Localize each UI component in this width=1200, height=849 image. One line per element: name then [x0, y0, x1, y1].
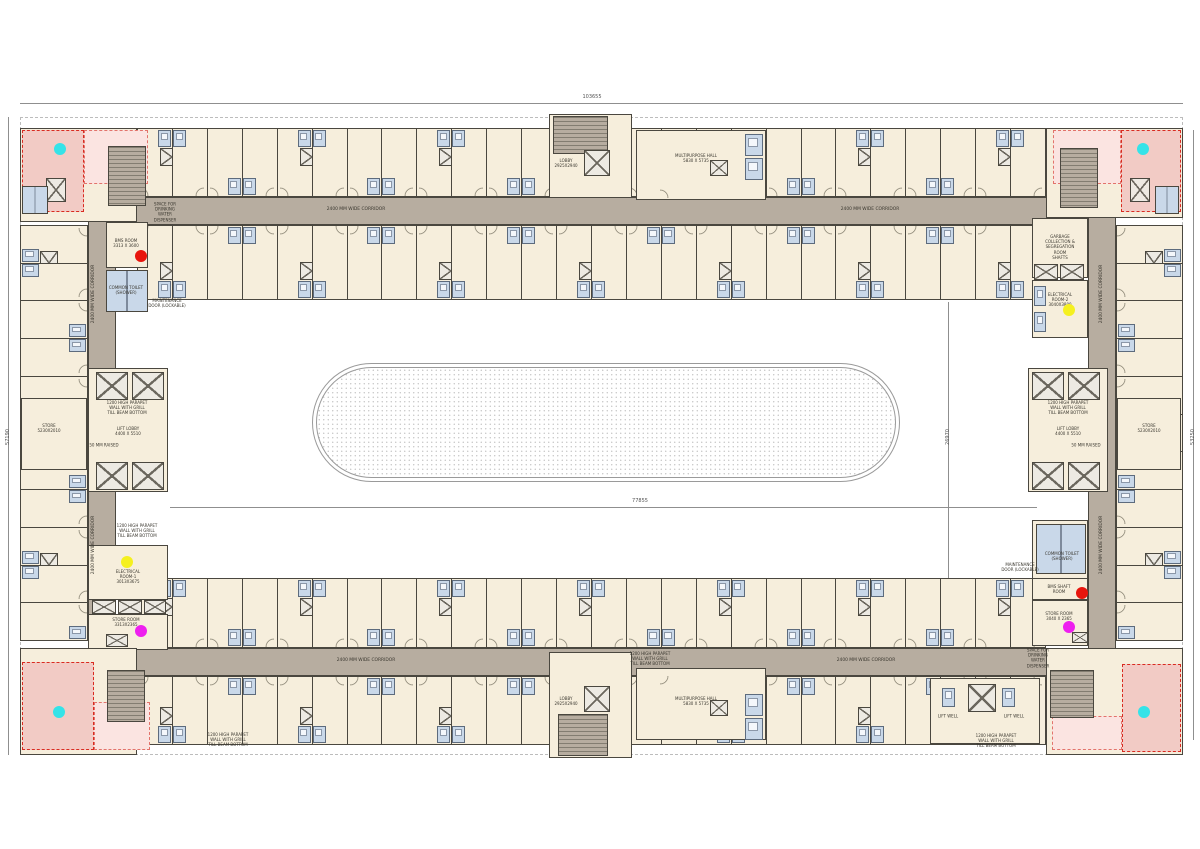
- parapet-left-label: 1200 HIGH PARAPET WALL WITH GRILL TILL B…: [107, 400, 148, 416]
- bathroom-pod: [732, 580, 745, 597]
- bathroom-pod: [926, 629, 939, 646]
- door-arc: [489, 226, 499, 236]
- door-arc: [419, 677, 429, 687]
- bathroom-pod: [228, 678, 241, 695]
- bathroom-pod: [926, 178, 939, 195]
- bathroom-pod: [158, 281, 171, 298]
- bathroom-pod: [243, 227, 256, 244]
- bathroom-pod: [69, 626, 86, 639]
- door-arc: [473, 186, 483, 196]
- bathroom-pod: [158, 726, 171, 743]
- lift-well-l2: [132, 372, 164, 400]
- door-arc: [350, 186, 360, 196]
- common-toilet-br-label: COMMON TOILET (SHOWER): [1045, 551, 1079, 561]
- electrical-pod-1: [1034, 286, 1046, 306]
- lift-shaft-br: [968, 684, 996, 712]
- door-arc: [77, 530, 87, 540]
- door-arc: [334, 637, 344, 647]
- door-arc: [699, 637, 709, 647]
- bathroom-pod: [592, 281, 605, 298]
- door-arc: [489, 677, 499, 687]
- door-arc: [194, 186, 204, 196]
- marker-dot-yellow-right: [1063, 304, 1075, 316]
- bathroom-pod: [69, 339, 86, 352]
- hall-top-pod-2: [745, 158, 763, 180]
- store-right-label: STORE 5230X2010: [1137, 423, 1160, 433]
- door-arc: [350, 677, 360, 687]
- bathroom-pod: [228, 178, 241, 195]
- bathroom-pod: [507, 227, 520, 244]
- door-arc: [1117, 530, 1127, 540]
- bathroom-pod: [69, 324, 86, 337]
- hall-bottom-pod-1: [745, 694, 763, 716]
- bathroom-pod: [298, 580, 311, 597]
- door-arc: [210, 677, 220, 687]
- bathroom-pod: [856, 130, 869, 147]
- door-arc: [473, 637, 483, 647]
- lift-section-pod-2: [1002, 688, 1015, 707]
- door-arc: [908, 637, 918, 647]
- bathroom-pod: [941, 227, 954, 244]
- bathroom-pod: [1118, 626, 1135, 639]
- door-arc: [838, 637, 848, 647]
- bathroom-pod: [228, 629, 241, 646]
- courtyard-hatch: [316, 367, 896, 478]
- bathroom-pod: [437, 726, 450, 743]
- door-arc: [77, 287, 87, 297]
- parapet-bottom-centre-label: 1200 HIGH PARAPET WALL WITH GRILL TILL B…: [630, 651, 671, 667]
- bathroom-pod: [298, 726, 311, 743]
- bathroom-pod: [313, 580, 326, 597]
- refuge-area-br-light: [1052, 716, 1122, 750]
- lift-section-pod-1: [942, 688, 955, 707]
- bathroom-pod: [367, 178, 380, 195]
- door-arc: [210, 637, 220, 647]
- bathroom-pod: [802, 178, 815, 195]
- bathroom-pod: [996, 281, 1009, 298]
- bathroom-pod: [926, 227, 939, 244]
- bathroom-pod: [69, 490, 86, 503]
- bathroom-pod: [802, 227, 815, 244]
- marker-dot-cyan-br: [1138, 706, 1150, 718]
- bathroom-pod: [871, 130, 884, 147]
- door-arc: [280, 637, 290, 647]
- hall-bottom-label: MULTIPURPOSE HALL 5830 X 5735: [675, 696, 717, 706]
- lift-well-r3: [1032, 462, 1064, 490]
- door-arc: [194, 226, 204, 236]
- parapet-bottom-left-label: 1200 HIGH PARAPET WALL WITH GRILL TILL B…: [208, 732, 249, 748]
- hall-top-label: MULTIPURPOSE HALL 5830 X 5735: [675, 153, 717, 163]
- bathroom-pod: [787, 227, 800, 244]
- lift-well-r1: [1032, 372, 1064, 400]
- bathroom-pod: [367, 227, 380, 244]
- bathroom-pod: [522, 227, 535, 244]
- marker-dot-cyan-tl: [54, 143, 66, 155]
- door-arc: [473, 677, 483, 687]
- door-arc: [699, 226, 709, 236]
- bathroom-pod: [22, 264, 39, 277]
- bathroom-pod: [298, 281, 311, 298]
- door-arc: [559, 226, 569, 236]
- shaft-garbage-1: [1034, 264, 1058, 280]
- bathroom-pod: [732, 281, 745, 298]
- door-arc: [1117, 514, 1127, 524]
- toilet-pod-tr: [1155, 186, 1179, 214]
- bathroom-pod: [802, 678, 815, 695]
- shaft-lb-2: [118, 600, 142, 614]
- door-arc: [978, 226, 988, 236]
- bathroom-pod: [313, 130, 326, 147]
- corridor-label-left-lower: 2400 MM WIDE CORRIDOR: [91, 516, 97, 575]
- marker-dot-magenta-left: [135, 625, 147, 637]
- bathroom-pod: [1011, 130, 1024, 147]
- bathroom-pod: [22, 249, 39, 262]
- bathroom-pod: [437, 130, 450, 147]
- bathroom-pod: [173, 726, 186, 743]
- door-arc: [543, 637, 553, 647]
- door-arc: [1117, 228, 1127, 238]
- door-arc: [403, 186, 413, 196]
- bathroom-pod: [647, 629, 660, 646]
- corridor-label-right-lower: 2400 MM WIDE CORRIDOR: [1099, 516, 1105, 575]
- bathroom-pod: [507, 678, 520, 695]
- bathroom-pod: [298, 130, 311, 147]
- door-arc: [403, 677, 413, 687]
- door-arc: [559, 637, 569, 647]
- bathroom-pod: [856, 281, 869, 298]
- staircase-tl: [108, 146, 146, 206]
- door-arc: [962, 186, 972, 196]
- door-arc-hall-top: [660, 188, 670, 198]
- water-dispenser-br-label: SPACE FOR DRINKING WATER DISPENSER: [1027, 648, 1050, 669]
- lift-shaft-tl: [46, 178, 66, 202]
- bathroom-pod: [173, 580, 186, 597]
- door-arc: [962, 637, 972, 647]
- door-arc: [194, 677, 204, 687]
- bathroom-pod: [1011, 580, 1024, 597]
- lift-well-r2: [1068, 372, 1100, 400]
- door-arc: [822, 226, 832, 236]
- bathroom-pod: [802, 629, 815, 646]
- corridor-label-right-upper: 2400 MM WIDE CORRIDOR: [1099, 265, 1105, 324]
- lift-well-br-right-label: LIFT WELL: [1004, 713, 1024, 718]
- bathroom-pod: [173, 281, 186, 298]
- door-arc: [822, 186, 832, 196]
- lift-well-l3: [96, 462, 128, 490]
- door-arc: [264, 186, 274, 196]
- door-arc: [962, 226, 972, 236]
- bathroom-pod: [1118, 339, 1135, 352]
- bathroom-pod: [787, 678, 800, 695]
- door-arc: [77, 303, 87, 313]
- door-arc: [210, 186, 220, 196]
- parapet-bottom-right-label: 1200 HIGH PARAPET WALL WITH GRILL TILL B…: [976, 733, 1017, 749]
- door-arc: [543, 226, 553, 236]
- door-arc: [838, 186, 848, 196]
- door-arc: [280, 186, 290, 196]
- door-arc: [77, 363, 87, 373]
- door-arc: [489, 637, 499, 647]
- door-arc: [892, 677, 902, 687]
- bathroom-pod: [1118, 490, 1135, 503]
- dim-overall-width: 103655: [582, 94, 601, 101]
- bathroom-pod: [367, 678, 380, 695]
- door-arc: [1032, 186, 1042, 196]
- door-arc: [280, 226, 290, 236]
- door-arc-hall-bottom: [660, 676, 670, 686]
- bathroom-pod: [228, 227, 241, 244]
- marker-dot-red-br: [1076, 587, 1088, 599]
- door-arc: [769, 677, 779, 687]
- bathroom-pod: [647, 227, 660, 244]
- door-arc: [419, 226, 429, 236]
- lift-lobby-left-label: LIFT LOBBY 4400 X 5510: [115, 426, 141, 436]
- door-arc: [77, 589, 87, 599]
- door-arc: [403, 637, 413, 647]
- lift-well-r4: [1068, 462, 1100, 490]
- bathroom-pod: [313, 726, 326, 743]
- door-arc: [1117, 605, 1127, 615]
- door-arc: [892, 226, 902, 236]
- staircase-tr: [1060, 148, 1098, 208]
- bathroom-pod: [452, 281, 465, 298]
- bathroom-pod: [856, 726, 869, 743]
- door-arc: [753, 637, 763, 647]
- store-left-block: [21, 398, 87, 470]
- bathroom-pod: [592, 580, 605, 597]
- floor-plan-canvas: 103655 57190 53250 77855 26970 2400 MM W…: [0, 0, 1200, 849]
- door-arc: [1117, 589, 1127, 599]
- door-arc: [77, 605, 87, 615]
- marker-dot-cyan-bl: [53, 706, 65, 718]
- staircase-br: [1050, 670, 1094, 718]
- parapet-left-lower-label: 1200 HIGH PARAPET WALL WITH GRILL TILL B…: [117, 523, 158, 539]
- corridor-label-top-right: 2400 MM WIDE CORRIDOR: [841, 207, 900, 213]
- door-arc: [210, 226, 220, 236]
- lift-lobby-right-label: LIFT LOBBY 4400 X 5510: [1055, 426, 1081, 436]
- door-arc: [77, 514, 87, 524]
- lobby-bottom-label: LOBBY 2925X2940: [554, 696, 577, 706]
- shaft-rb-1: [1072, 632, 1088, 643]
- marker-dot-cyan-tr: [1137, 143, 1149, 155]
- bathroom-pod: [1118, 475, 1135, 488]
- parapet-right-label: 1200 HIGH PARAPET WALL WITH GRILL TILL B…: [1048, 400, 1089, 416]
- water-dispenser-tl-label: SPACE FOR DRINKING WATER DISPENSER: [154, 202, 177, 223]
- door-arc: [1117, 303, 1127, 313]
- raised-left-label: 50 MM RAISED: [89, 442, 118, 447]
- door-arc: [978, 186, 988, 196]
- dimension-line-courtyard-w: [170, 507, 1037, 508]
- door-arc: [473, 226, 483, 236]
- lift-shaft-top: [584, 150, 610, 176]
- dim-courtyard-height: 26970: [945, 429, 952, 445]
- bathroom-pod: [1164, 264, 1181, 277]
- hall-top-pod-1: [745, 134, 763, 156]
- door-arc: [892, 637, 902, 647]
- store-room-left-label: STORE ROOM 3313X2365: [112, 617, 139, 627]
- door-arc: [334, 226, 344, 236]
- corridor-top: [88, 197, 1112, 225]
- bathroom-pod: [522, 629, 535, 646]
- common-toilet-tl-label: COMMON TOILET (SHOWER): [109, 285, 143, 295]
- door-arc: [350, 226, 360, 236]
- bathroom-pod: [367, 629, 380, 646]
- dimension-line-top: [20, 103, 1183, 104]
- bathroom-pod: [382, 629, 395, 646]
- bathroom-pod: [996, 580, 1009, 597]
- shaft-garbage-2: [1060, 264, 1084, 280]
- door-arc: [613, 637, 623, 647]
- door-arc: [77, 228, 87, 238]
- door-arc: [264, 677, 274, 687]
- bathroom-pod: [871, 281, 884, 298]
- door-arc: [892, 186, 902, 196]
- door-arc: [822, 677, 832, 687]
- garbage-room-label: GARBAGE COLLECTION & SEGREGATION ROOM SH…: [1045, 234, 1075, 260]
- bathroom-pod: [996, 130, 1009, 147]
- electrical-room-1-label: ELECTRICAL ROOM-1 3013X3675: [116, 569, 140, 585]
- maintenance-door-br-label: MAINTENANCE DOOR (LOCKABLE): [1001, 562, 1038, 572]
- door-arc: [629, 226, 639, 236]
- bathroom-pod: [856, 580, 869, 597]
- bathroom-pod: [941, 629, 954, 646]
- door-arc: [613, 226, 623, 236]
- bathroom-pod: [452, 130, 465, 147]
- corridor-label-top-left: 2400 MM WIDE CORRIDOR: [327, 207, 386, 213]
- shaft-lb-1: [92, 600, 116, 614]
- bathroom-pod: [1164, 249, 1181, 262]
- bathroom-pod: [507, 178, 520, 195]
- bathroom-pod: [1118, 324, 1135, 337]
- store-right-block: [1117, 398, 1181, 470]
- door-arc: [194, 637, 204, 647]
- maintenance-door-tl-label: MAINTENANCE DOOR (LOCKABLE): [148, 298, 185, 308]
- bathroom-pod: [522, 178, 535, 195]
- marker-dot-red-tl: [135, 250, 147, 262]
- bms-shaft-room-label: BMS SHAFT ROOM: [1048, 584, 1071, 594]
- bathroom-pod: [522, 678, 535, 695]
- shaft-lb-3: [144, 600, 166, 614]
- bathroom-pod: [717, 580, 730, 597]
- lift-shaft-tr: [1130, 178, 1150, 202]
- door-arc: [264, 637, 274, 647]
- shaft-lb-4: [106, 634, 128, 647]
- door-arc: [403, 226, 413, 236]
- door-arc: [769, 637, 779, 647]
- door-arc: [629, 637, 639, 647]
- store-room-right-label: STORE ROOM 3040 X 2365: [1045, 611, 1072, 621]
- door-arc: [419, 637, 429, 647]
- door-arc: [264, 226, 274, 236]
- dim-right-height: 53250: [1190, 429, 1197, 445]
- bathroom-pod: [787, 178, 800, 195]
- lobby-top-label: LOBBY 2925X2940: [554, 158, 577, 168]
- staircase-bottom: [558, 714, 608, 756]
- door-arc: [77, 379, 87, 389]
- bathroom-pod: [243, 678, 256, 695]
- bathroom-pod: [437, 580, 450, 597]
- bathroom-pod: [871, 580, 884, 597]
- door-arc: [1117, 287, 1127, 297]
- bms-room-label: BMS ROOM 3313 X 3600: [113, 238, 139, 248]
- door-arc: [419, 186, 429, 196]
- door-arc: [280, 677, 290, 687]
- courtyard-track: [312, 363, 900, 482]
- raised-right-label: 50 MM RAISED: [1071, 442, 1100, 447]
- bathroom-pod: [507, 629, 520, 646]
- bathroom-pod: [662, 227, 675, 244]
- dim-courtyard-width: 77855: [632, 498, 648, 505]
- bathroom-pod: [452, 580, 465, 597]
- bathroom-pod: [871, 726, 884, 743]
- door-arc: [908, 226, 918, 236]
- door-arc: [334, 186, 344, 196]
- door-arc: [350, 637, 360, 647]
- bathroom-pod: [577, 281, 590, 298]
- door-arc: [978, 637, 988, 647]
- door-arc: [838, 226, 848, 236]
- bathroom-pod: [243, 629, 256, 646]
- staircase-top: [553, 116, 608, 154]
- corridor-label-bottom-left: 2400 MM WIDE CORRIDOR: [337, 658, 396, 664]
- bathroom-pod: [22, 551, 39, 564]
- door-arc: [822, 637, 832, 647]
- bathroom-pod: [158, 130, 171, 147]
- bathroom-pod: [22, 566, 39, 579]
- bathroom-pod: [1164, 566, 1181, 579]
- bathroom-pod: [382, 178, 395, 195]
- bathroom-pod: [1164, 551, 1181, 564]
- marker-dot-magenta-right: [1063, 621, 1075, 633]
- hall-bottom-pod-2: [745, 718, 763, 740]
- door-arc: [1117, 363, 1127, 373]
- marker-dot-yellow-left: [121, 556, 133, 568]
- door-arc: [908, 186, 918, 196]
- bathroom-pod: [69, 475, 86, 488]
- store-left-label: STORE 5230X2010: [37, 423, 60, 433]
- lift-well-l4: [132, 462, 164, 490]
- door-arc: [683, 226, 693, 236]
- corridor-label-bottom-right: 2400 MM WIDE CORRIDOR: [837, 658, 896, 664]
- bathroom-pod: [941, 178, 954, 195]
- bathroom-pod: [243, 178, 256, 195]
- bathroom-pod: [717, 281, 730, 298]
- corridor-label-left-upper: 2400 MM WIDE CORRIDOR: [91, 265, 97, 324]
- door-arc: [1117, 379, 1127, 389]
- toilet-pod-tl: [22, 186, 48, 214]
- bathroom-pod: [382, 227, 395, 244]
- bathroom-pod: [787, 629, 800, 646]
- bathroom-pod: [173, 130, 186, 147]
- door-arc: [769, 226, 779, 236]
- door-arc: [838, 677, 848, 687]
- common-toilet-br-block: [1036, 524, 1086, 574]
- bathroom-pod: [437, 281, 450, 298]
- bathroom-pod: [1011, 281, 1024, 298]
- electrical-pod-2: [1034, 312, 1046, 332]
- door-arc: [489, 186, 499, 196]
- bathroom-pod: [662, 629, 675, 646]
- lift-well-br-left-label: LIFT WELL: [938, 713, 958, 718]
- lift-shaft-bottom: [584, 686, 610, 712]
- bathroom-pod: [452, 726, 465, 743]
- bathroom-pod: [577, 580, 590, 597]
- staircase-bl: [107, 670, 145, 722]
- dim-left-height: 57190: [5, 429, 12, 445]
- door-arc: [683, 637, 693, 647]
- door-arc: [753, 226, 763, 236]
- door-arc: [769, 186, 779, 196]
